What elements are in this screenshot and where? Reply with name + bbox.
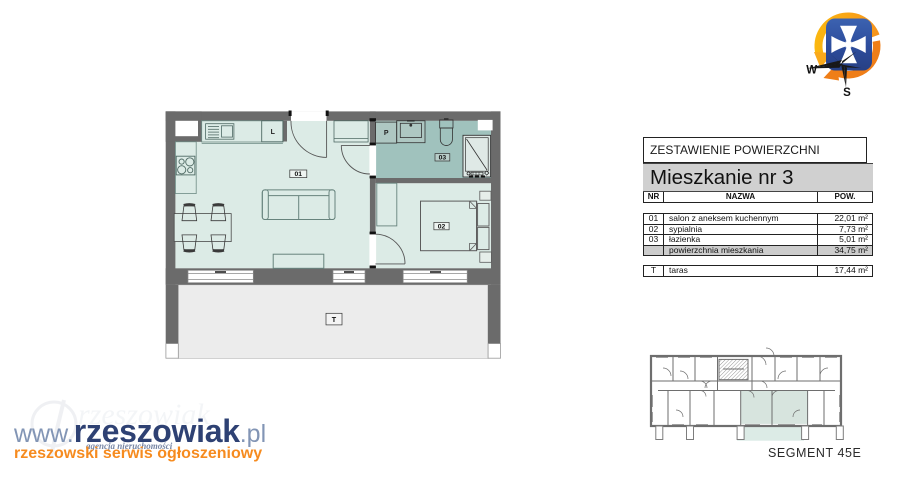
- svg-text:02: 02: [438, 224, 446, 231]
- svg-text:P: P: [384, 130, 389, 137]
- svg-text:01: 01: [295, 171, 303, 178]
- svg-text:S: S: [843, 87, 851, 99]
- svg-text:L: L: [271, 129, 276, 136]
- svg-text:W: W: [806, 64, 817, 76]
- svg-text:T: T: [332, 315, 337, 324]
- svg-text:03: 03: [439, 155, 447, 162]
